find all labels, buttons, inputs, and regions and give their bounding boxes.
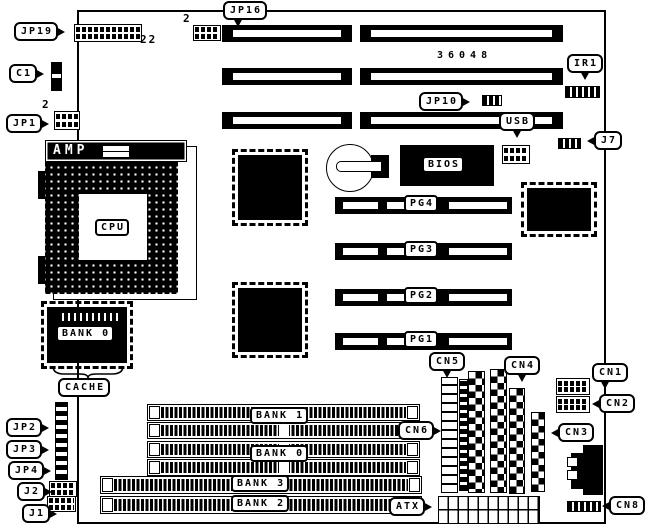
cn3-connector (531, 412, 545, 492)
callout-c1: C1 (9, 64, 37, 83)
pg1-text: PG1 (410, 334, 434, 345)
cn2-label: CN2 (606, 398, 630, 409)
keyboard-connector-notch-1 (567, 457, 578, 467)
motherboard-layout-diagram: 36048 JP19 22 C1 JP1 2 JP16 2 IR1 JP10 U… (0, 0, 651, 529)
pg4-slot-label: PG4 (404, 195, 438, 212)
cn1-header (556, 378, 590, 395)
bank0-text: BANK 0 (256, 448, 304, 459)
jp1-label: JP1 (13, 118, 37, 129)
amp-brand-text: AMP (53, 143, 88, 158)
callout-cn4: CN4 (504, 356, 540, 375)
jp10-header (482, 95, 502, 106)
keyboard-connector-notch-2 (567, 470, 578, 480)
jp10-label: JP10 (426, 96, 458, 107)
socket-tab-bottom (38, 256, 45, 284)
pg2-text: PG2 (410, 290, 434, 301)
cn6-connector (441, 377, 458, 493)
jp2-label: JP2 (13, 422, 37, 433)
jp19-header (74, 24, 142, 42)
isa-slot-2-left (222, 68, 352, 85)
bios-label-text: BIOS (428, 159, 460, 170)
voltage-module-bar: AMP (45, 140, 187, 162)
memory-socket-2 (147, 422, 420, 439)
callout-cn5: CN5 (429, 352, 465, 371)
cache-bank-label: BANK 0 (56, 325, 114, 342)
j7-label: J7 (601, 135, 617, 146)
callout-j7: J7 (594, 131, 622, 150)
bank1-text: BANK 1 (256, 410, 304, 421)
j1-label: J1 (29, 508, 45, 519)
bank0-label: BANK 0 (250, 445, 308, 462)
cn8-label: CN8 (616, 500, 640, 511)
jp4-label: JP4 (15, 465, 39, 476)
callout-ir1: IR1 (567, 54, 603, 73)
callout-cn8: CN8 (609, 496, 645, 515)
cn6-label: CN6 (405, 425, 429, 436)
callout-jp1: JP1 (6, 114, 42, 133)
ir1-label: IR1 (574, 58, 598, 69)
cn1-label: CN1 (599, 367, 623, 378)
battery-clip-arm (336, 161, 382, 172)
pg1-slot-label: PG1 (404, 331, 438, 348)
amp-white-mark-2 (103, 152, 129, 157)
socket-tab-top (38, 171, 45, 199)
cn8-header (567, 501, 601, 512)
amp-white-mark-1 (103, 146, 129, 151)
board-model-number: 36048 (437, 50, 492, 61)
callout-atx: ATX (389, 497, 425, 516)
pg2-slot-label: PG2 (404, 287, 438, 304)
bank3-text: BANK 3 (237, 478, 285, 489)
pg3-slot-label: PG3 (404, 241, 438, 258)
keyboard-connector (583, 445, 603, 495)
isa-slot-1-right (360, 25, 563, 42)
pg4-text: PG4 (410, 198, 434, 209)
jp1-header (54, 111, 80, 130)
j7-header (558, 138, 581, 149)
cpu-side-strip (57, 312, 121, 322)
c1-label: C1 (16, 68, 32, 79)
cache-label: CACHE (65, 382, 105, 393)
callout-j2: J2 (17, 482, 45, 501)
callout-usb: USB (499, 112, 535, 131)
jp19-pin-number: 22 (140, 33, 157, 46)
isa-slot-2-right (360, 68, 563, 85)
cn4-connector (509, 388, 525, 494)
bios-label: BIOS (422, 156, 464, 173)
jp19-label: JP19 (21, 26, 53, 37)
bank2-label: BANK 2 (231, 495, 289, 512)
ir1-header (565, 86, 600, 98)
jp3-label: JP3 (13, 444, 37, 455)
cn6-connector-pins (459, 379, 468, 491)
cpu-label-text: CPU (101, 222, 125, 233)
atx-power-connector (438, 496, 540, 524)
cn5-label: CN5 (436, 356, 460, 367)
cn2-header (556, 396, 590, 413)
callout-cn2: CN2 (599, 394, 635, 413)
jp1-pin-number: 2 (42, 98, 51, 111)
callout-jp10: JP10 (419, 92, 463, 111)
cn3-label: CN3 (565, 427, 589, 438)
isa-slot-1-left (222, 25, 352, 42)
bank3-label: BANK 3 (231, 475, 289, 492)
callout-jp16: JP16 (223, 1, 267, 20)
callout-jp2: JP2 (6, 418, 42, 437)
callout-j1: J1 (22, 504, 50, 523)
callout-jp3: JP3 (6, 440, 42, 459)
jp2-jp3-jp4-jumper-strip (55, 402, 68, 480)
atx-label: ATX (396, 501, 420, 512)
cache-bank-text: BANK 0 (62, 328, 110, 339)
j2-label: J2 (24, 486, 40, 497)
io-controller-ic (527, 188, 591, 231)
chipset-ic-2 (238, 288, 302, 352)
ide-connector-mid (490, 369, 507, 493)
callout-cn1: CN1 (592, 363, 628, 382)
jp16-pin-number: 2 (183, 12, 192, 25)
chipset-ic-1 (238, 155, 302, 220)
jp16-label: JP16 (230, 5, 262, 16)
cache-brace (50, 365, 126, 379)
callout-jp4: JP4 (8, 461, 44, 480)
callout-cn3: CN3 (558, 423, 594, 442)
callout-cache: CACHE (58, 378, 110, 397)
usb-header (502, 145, 530, 164)
cn5-connector (468, 371, 485, 493)
cn4-label: CN4 (511, 360, 535, 371)
j2-header (49, 481, 77, 497)
isa-slot-3-left (222, 112, 352, 129)
bank1-label: BANK 1 (250, 407, 308, 424)
jp16-header (193, 25, 221, 41)
pg3-text: PG3 (410, 244, 434, 255)
usb-label: USB (506, 116, 530, 127)
cpu-label: CPU (95, 219, 129, 236)
bank2-text: BANK 2 (237, 498, 285, 509)
callout-cn6: CN6 (398, 421, 434, 440)
callout-jp19: JP19 (14, 22, 58, 41)
c1-component (51, 62, 62, 91)
